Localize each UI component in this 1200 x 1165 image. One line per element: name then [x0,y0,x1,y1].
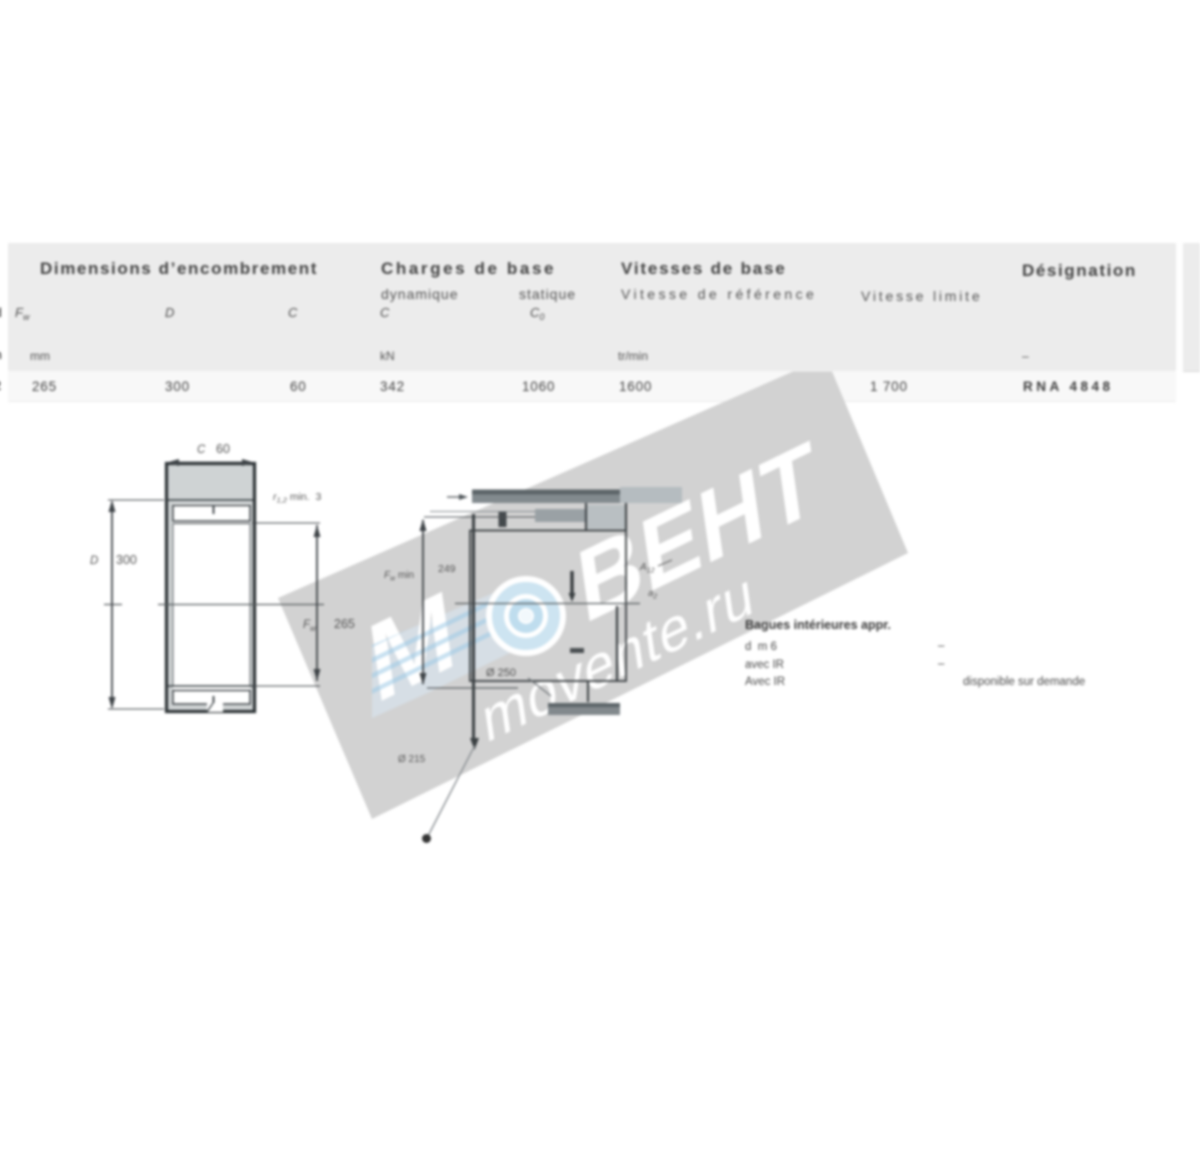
svg-text:Avec IR: Avec IR [745,676,785,688]
svg-text:avec IR: avec IR [745,659,784,671]
svg-text:Bagues intérieures appr.: Bagues intérieures appr. [745,618,891,632]
svg-text:C: C [197,444,206,456]
svg-text:r1,2 min. 3: r1,2 min. 3 [273,491,322,505]
svg-text:disponible sur demande: disponible sur demande [963,676,1085,688]
svg-text:d m 6: d m 6 [745,641,777,653]
svg-text:–: – [938,640,945,652]
svg-text:249: 249 [438,563,456,575]
svg-text:300: 300 [116,553,137,567]
svg-text:60: 60 [216,442,230,456]
svg-text:Fw min: Fw min [384,570,414,583]
svg-text:Ø 250: Ø 250 [486,667,516,679]
svg-text:–: – [938,658,945,670]
svg-text:D: D [90,555,98,567]
svg-text:Ø 215: Ø 215 [398,754,426,765]
svg-text:265: 265 [334,617,355,631]
